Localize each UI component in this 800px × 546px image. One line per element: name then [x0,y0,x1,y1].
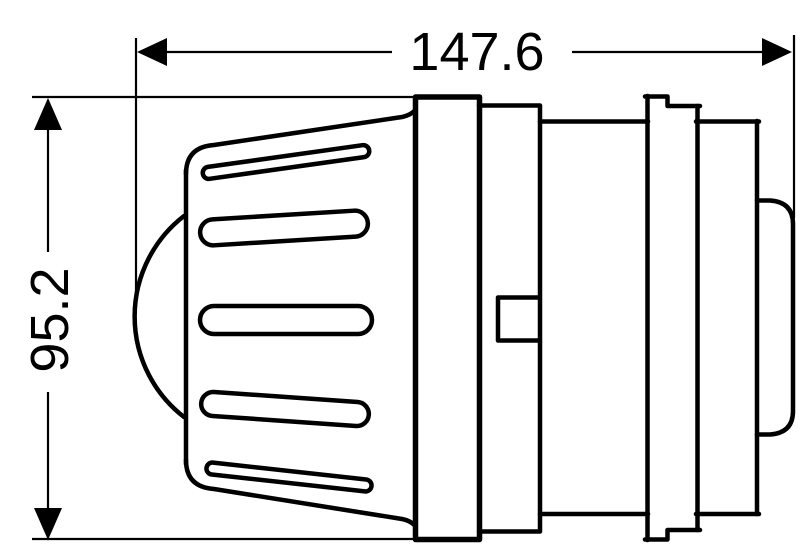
horizontal-dimension-value: 147.6 [409,22,544,82]
grip-slot-5 [206,462,372,492]
grip-slot-3 [200,306,372,334]
front-ring-outline [416,97,480,540]
technical-drawing-page: 147.6 95.2 [0,0,800,546]
key-detail-outline [498,298,539,341]
arrowhead-down-icon [34,508,62,540]
arrowhead-left-icon [137,38,167,66]
arrowhead-up-icon [34,98,62,130]
arrowhead-right-icon [762,38,792,66]
vertical-dimension-value: 95.2 [20,267,80,372]
part-outline [135,96,793,540]
flange-bottom-tab [645,530,700,540]
grip-slot-2 [199,210,368,246]
grip-slot-1 [202,144,370,179]
collar-outline [479,106,540,532]
mounting-flange-outline [645,96,700,540]
grip-slots [199,144,372,492]
rear-boss-outline [757,201,793,435]
dimensioned-part-drawing: 147.6 95.2 [0,0,800,546]
flange-top-tab [645,97,700,107]
lens-dome-outline [135,216,184,417]
grip-slot-4 [200,391,369,427]
